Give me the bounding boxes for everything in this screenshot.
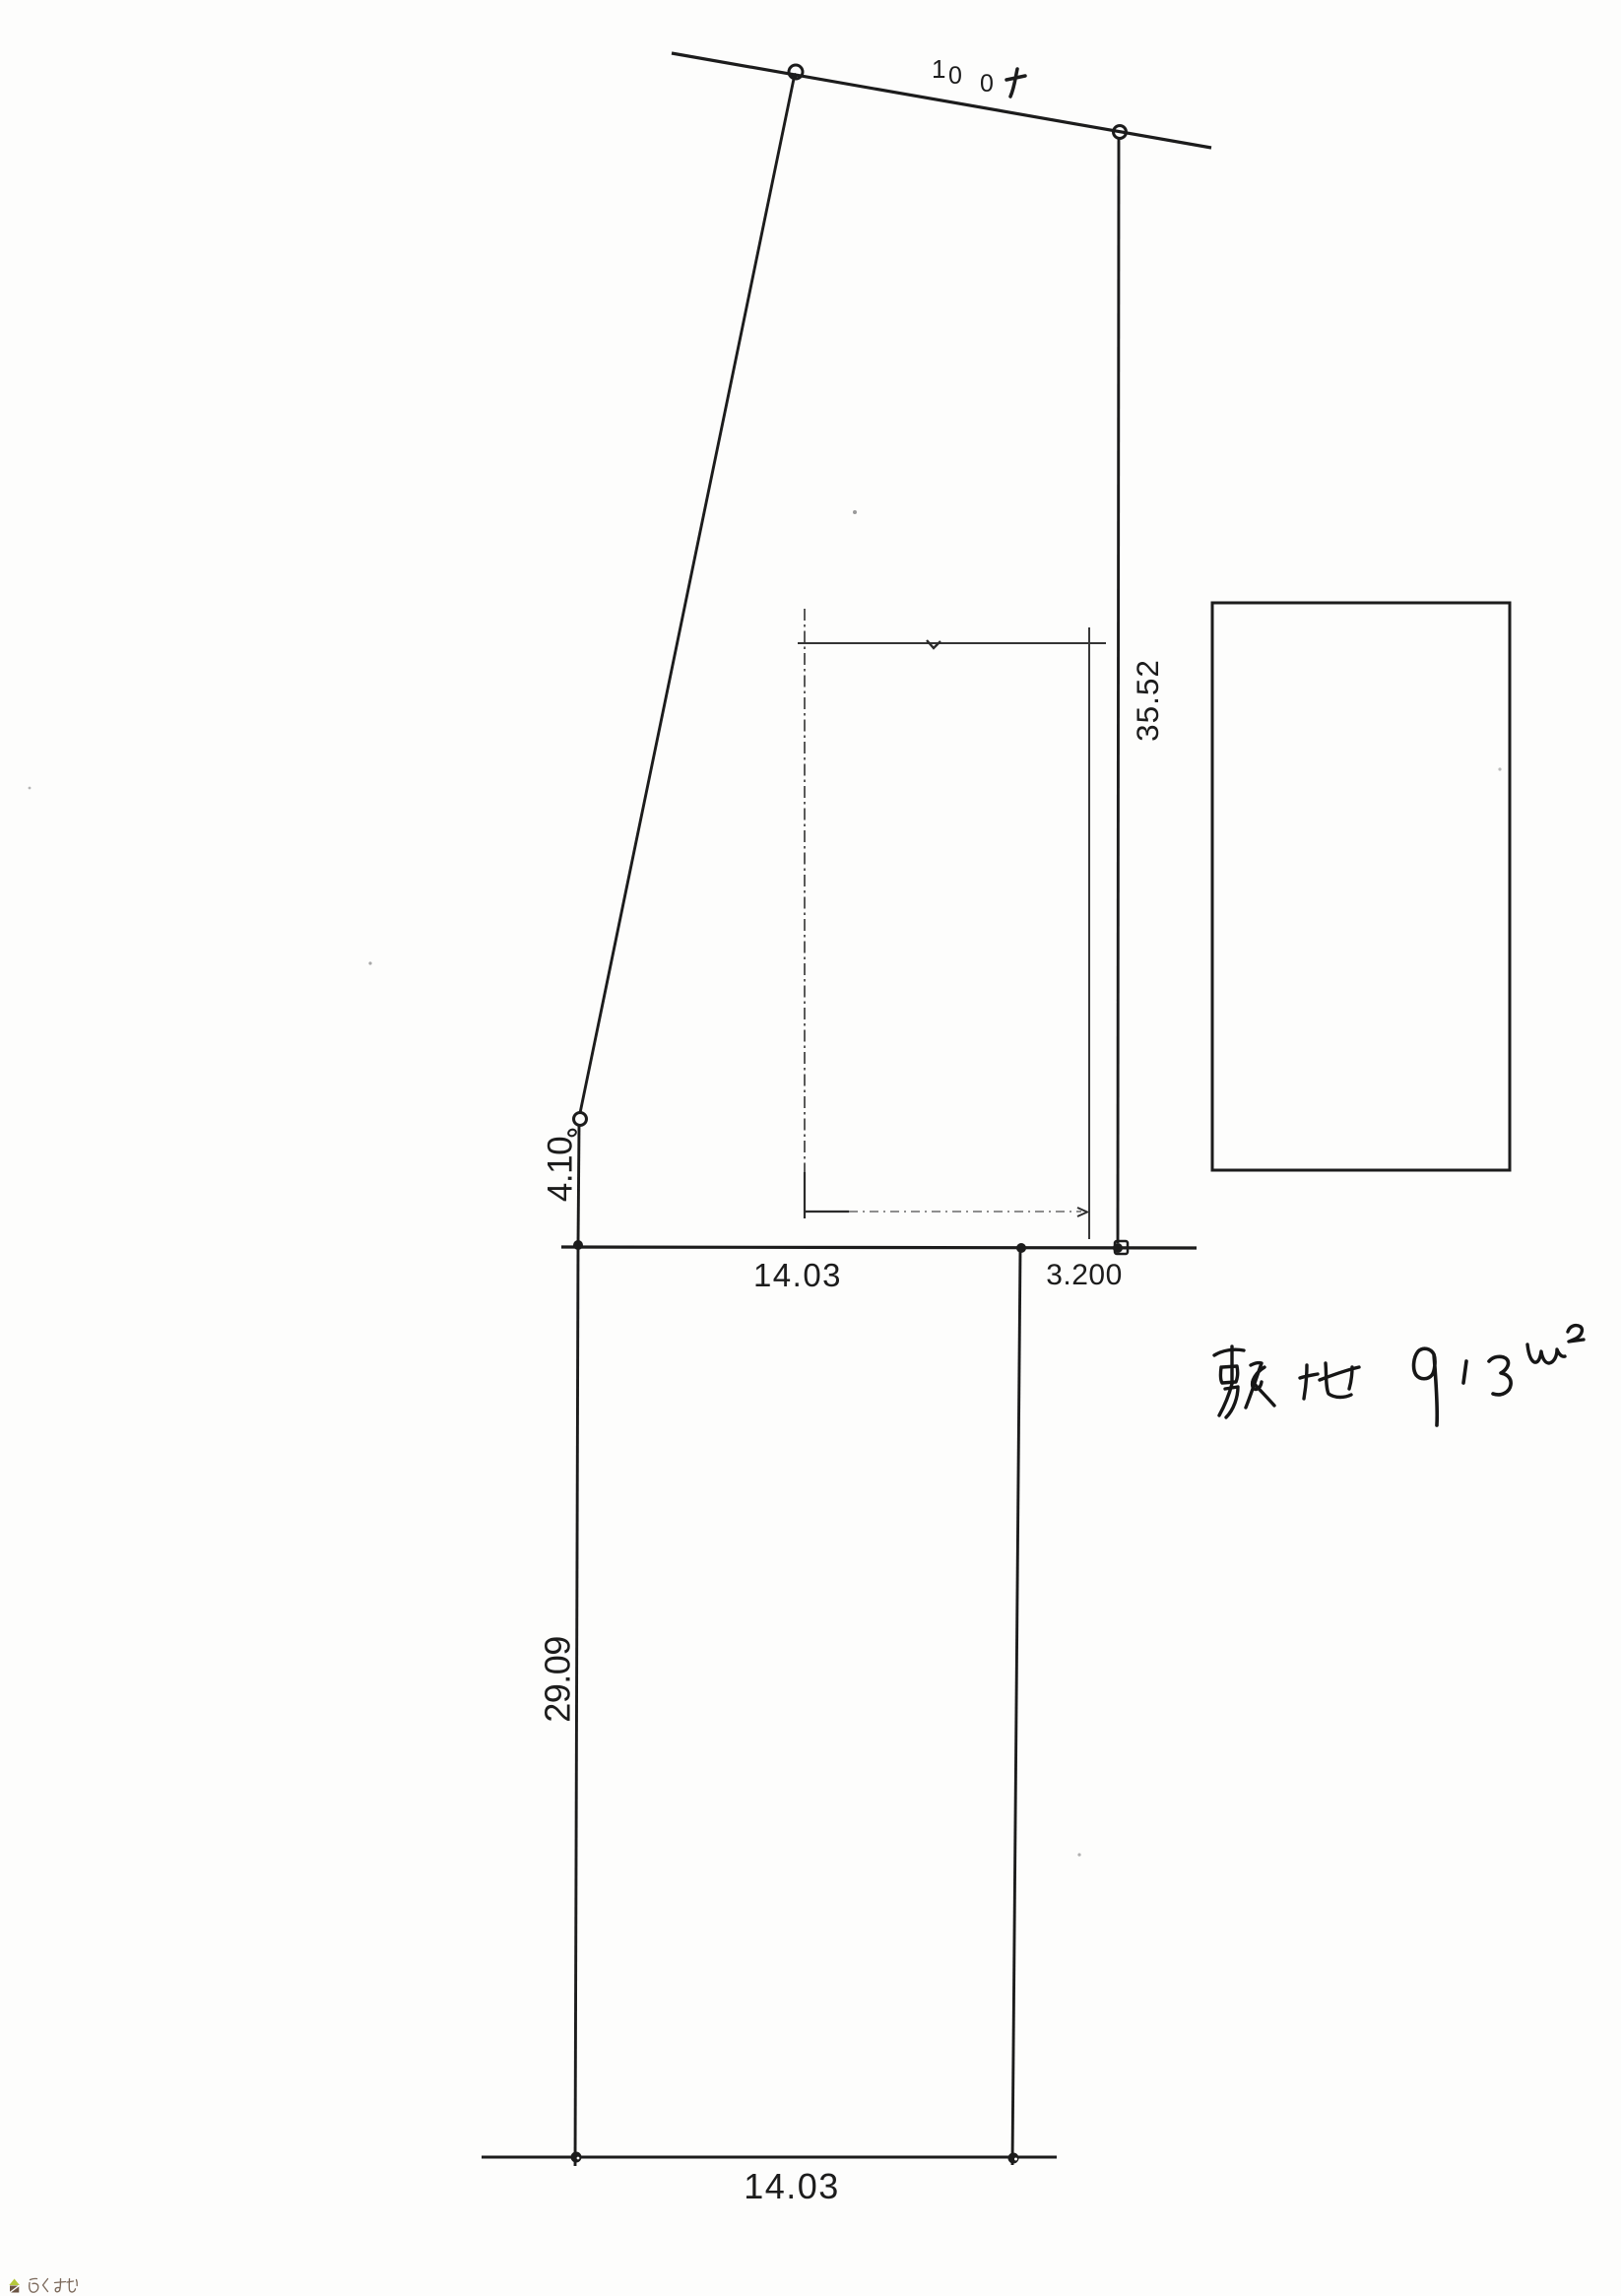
svg-text:3.200: 3.200 [1046,1259,1123,1291]
svg-text:14.03: 14.03 [753,1257,842,1293]
svg-text:0: 0 [980,70,994,98]
svg-text:0: 0 [948,62,962,90]
svg-text:4.10: 4.10 [542,1137,580,1202]
svg-text:1: 1 [932,54,945,84]
svg-text:35.52: 35.52 [1130,659,1165,742]
svg-text:14.03: 14.03 [744,2166,840,2206]
svg-text:29.09: 29.09 [538,1636,578,1723]
